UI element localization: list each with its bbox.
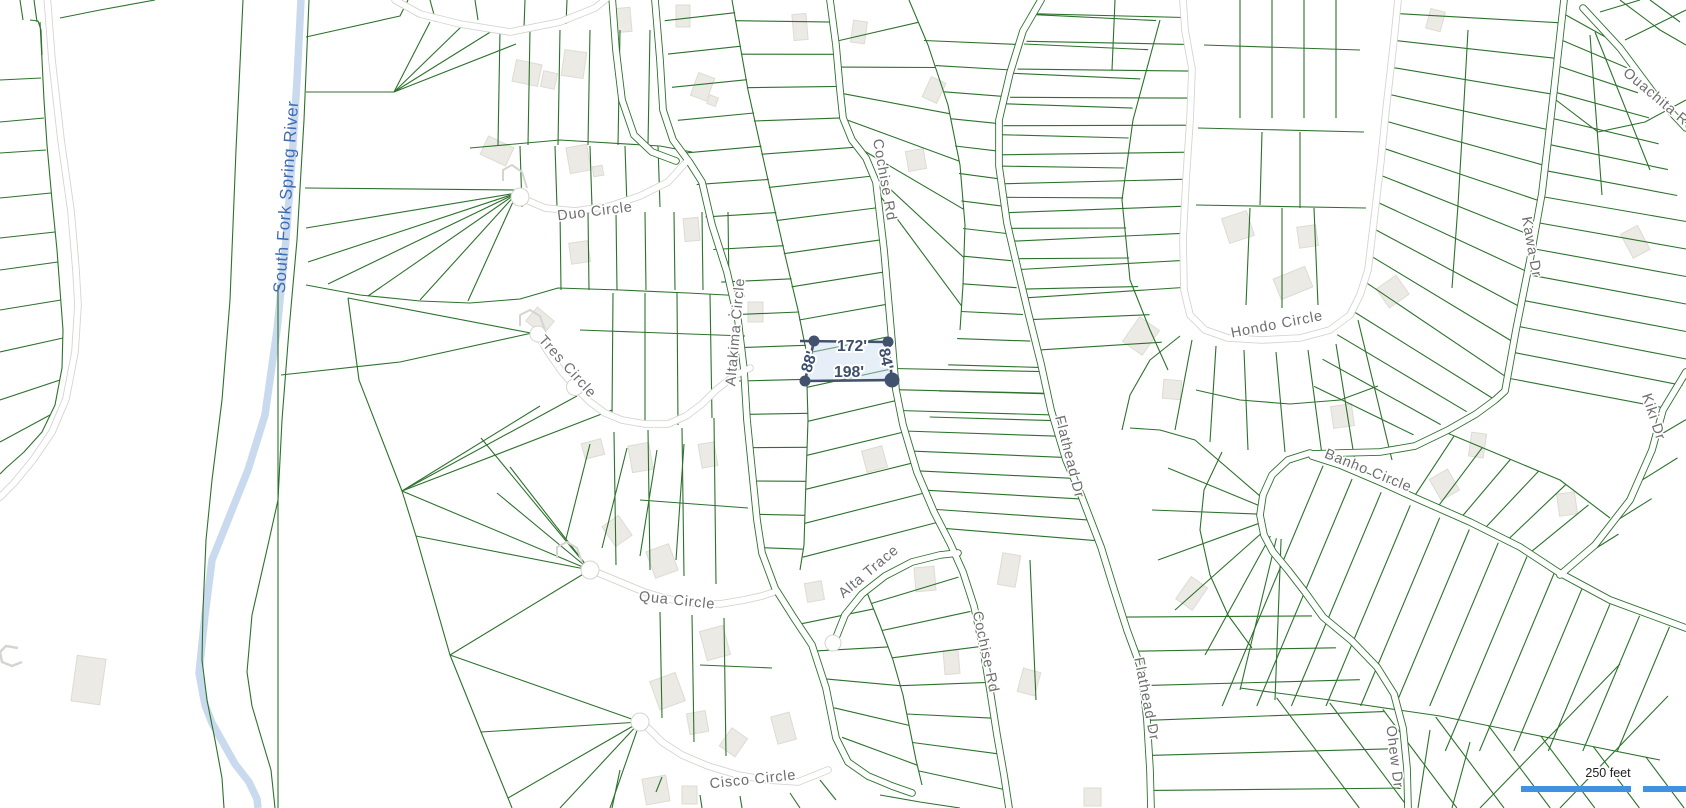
svg-text:198': 198' bbox=[834, 364, 864, 381]
svg-text:172': 172' bbox=[837, 338, 867, 355]
svg-text:250 feet: 250 feet bbox=[1585, 766, 1631, 780]
